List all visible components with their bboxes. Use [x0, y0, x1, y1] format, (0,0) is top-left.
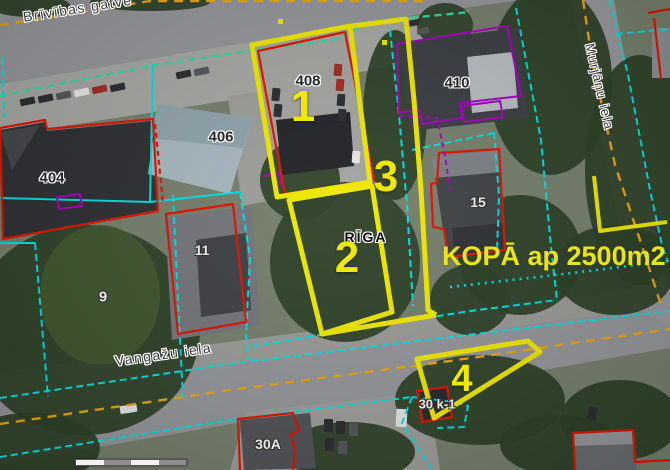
survey-point-1 [278, 19, 283, 24]
building-11-courtyard [196, 233, 251, 317]
map-canvas[interactable]: Brīvības gatve Vangažu iela Murjāņu iela… [0, 0, 670, 470]
building-30a-roof [240, 413, 316, 470]
survey-point-2 [382, 40, 387, 45]
scale-bar [75, 459, 187, 466]
aerial-photo-and-overlay [0, 0, 670, 470]
red-top-right-1 [648, 9, 670, 13]
building-in-parcel1-roof [276, 112, 354, 175]
